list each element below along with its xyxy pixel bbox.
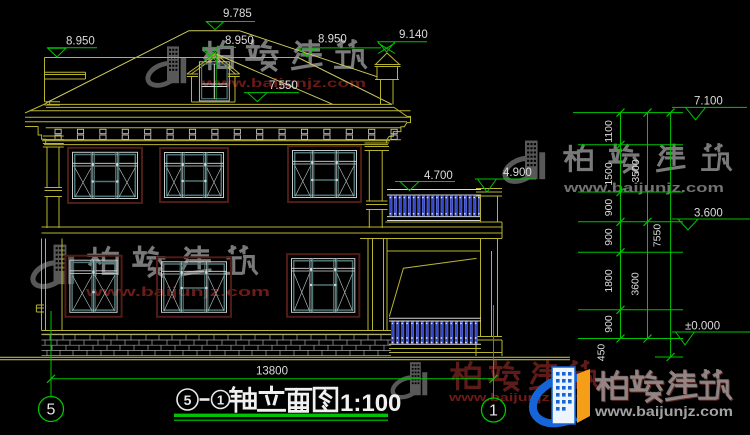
svg-text:3600: 3600 [630, 272, 642, 296]
svg-text:5: 5 [47, 402, 56, 419]
svg-text:www.baijunjz.com: www.baijunjz.com [594, 403, 733, 419]
svg-text:±0.000: ±0.000 [685, 321, 720, 333]
svg-text:www.baijunjz.com: www.baijunjz.com [84, 284, 270, 299]
svg-text:13800: 13800 [256, 366, 288, 378]
svg-text:1: 1 [489, 403, 498, 420]
svg-text:9.785: 9.785 [223, 8, 252, 20]
svg-text:8.950: 8.950 [225, 35, 254, 47]
svg-text:1: 1 [217, 393, 224, 408]
svg-text:7.100: 7.100 [694, 96, 723, 108]
svg-text:4.900: 4.900 [503, 167, 532, 179]
svg-text:3.600: 3.600 [694, 208, 723, 220]
svg-text:1500: 1500 [603, 162, 615, 186]
svg-text:1:100: 1:100 [340, 390, 401, 417]
svg-text:7.550: 7.550 [269, 80, 298, 92]
svg-text:4.700: 4.700 [424, 170, 453, 182]
svg-text:9.140: 9.140 [399, 29, 428, 41]
svg-text:900: 900 [603, 315, 615, 333]
svg-text:900: 900 [603, 199, 615, 217]
svg-text:450: 450 [596, 344, 608, 362]
svg-text:7550: 7550 [652, 224, 664, 248]
svg-text:3500: 3500 [630, 159, 642, 183]
svg-text:8.950: 8.950 [318, 34, 347, 46]
svg-text:1800: 1800 [603, 269, 615, 293]
svg-text:1100: 1100 [603, 120, 615, 143]
svg-text:8.950: 8.950 [66, 36, 95, 48]
svg-text:900: 900 [603, 228, 615, 246]
svg-text:5: 5 [184, 392, 192, 408]
svg-text:www.baijunjz.com: www.baijunjz.com [563, 180, 724, 195]
